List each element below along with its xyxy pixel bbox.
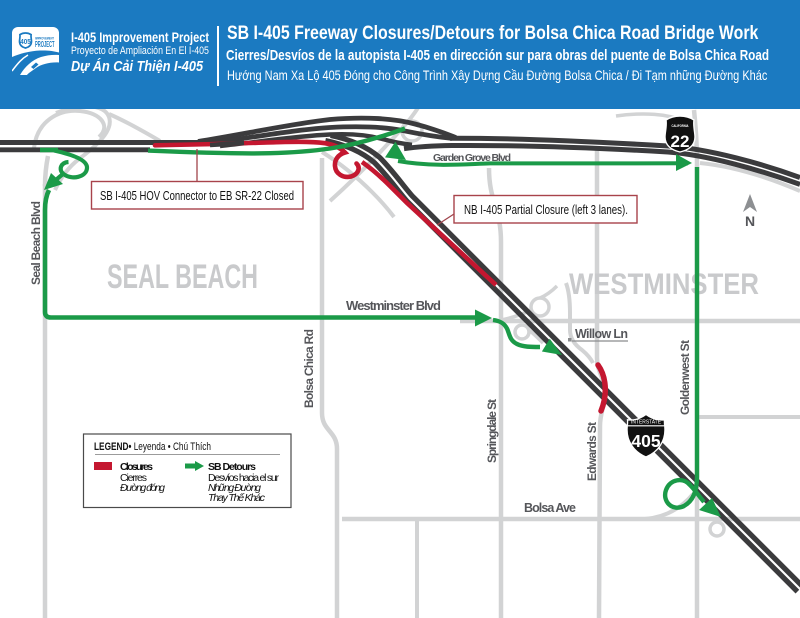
svg-text:CALIFORNIA: CALIFORNIA <box>672 124 689 128</box>
svg-text:Springdale St: Springdale St <box>485 399 499 463</box>
svg-text:Goldenwest St: Goldenwest St <box>678 340 692 415</box>
svg-text:WESTMINSTER: WESTMINSTER <box>569 268 759 301</box>
svg-text:405: 405 <box>631 431 660 451</box>
svg-text:Edwards St: Edwards St <box>585 422 599 481</box>
svg-text:PROJECT: PROJECT <box>35 40 55 49</box>
svg-text:Bolsa Ave: Bolsa Ave <box>524 501 576 515</box>
svg-text:22: 22 <box>671 132 690 151</box>
svg-text:Willow Ln: Willow Ln <box>575 327 628 341</box>
svg-text:Garden Grove Blvd: Garden Grove Blvd <box>433 152 511 164</box>
svg-text:Thay Thế Khác: Thay Thế Khác <box>208 492 266 504</box>
svg-text:INTERSTATE: INTERSTATE <box>631 420 661 426</box>
svg-text:405: 405 <box>20 39 31 46</box>
svg-text:SB I-405 HOV Connector to EB S: SB I-405 HOV Connector to EB SR-22 Close… <box>100 188 294 203</box>
svg-text:NB I-405 Partial Closure (left: NB I-405 Partial Closure (left 3 lanes). <box>464 202 628 217</box>
svg-text:Westminster Blvd: Westminster Blvd <box>346 298 441 313</box>
svg-text:Bolsa Chica Rd: Bolsa Chica Rd <box>302 329 316 408</box>
svg-text:SEAL BEACH: SEAL BEACH <box>107 258 258 296</box>
svg-text:Đường đóng: Đường đóng <box>120 482 165 494</box>
svg-text:Seal Beach Blvd: Seal Beach Blvd <box>29 201 43 285</box>
svg-text:N: N <box>745 213 755 229</box>
svg-text:LEGEND• Leyenda • Chú Thích: LEGEND• Leyenda • Chú Thích <box>94 441 211 453</box>
